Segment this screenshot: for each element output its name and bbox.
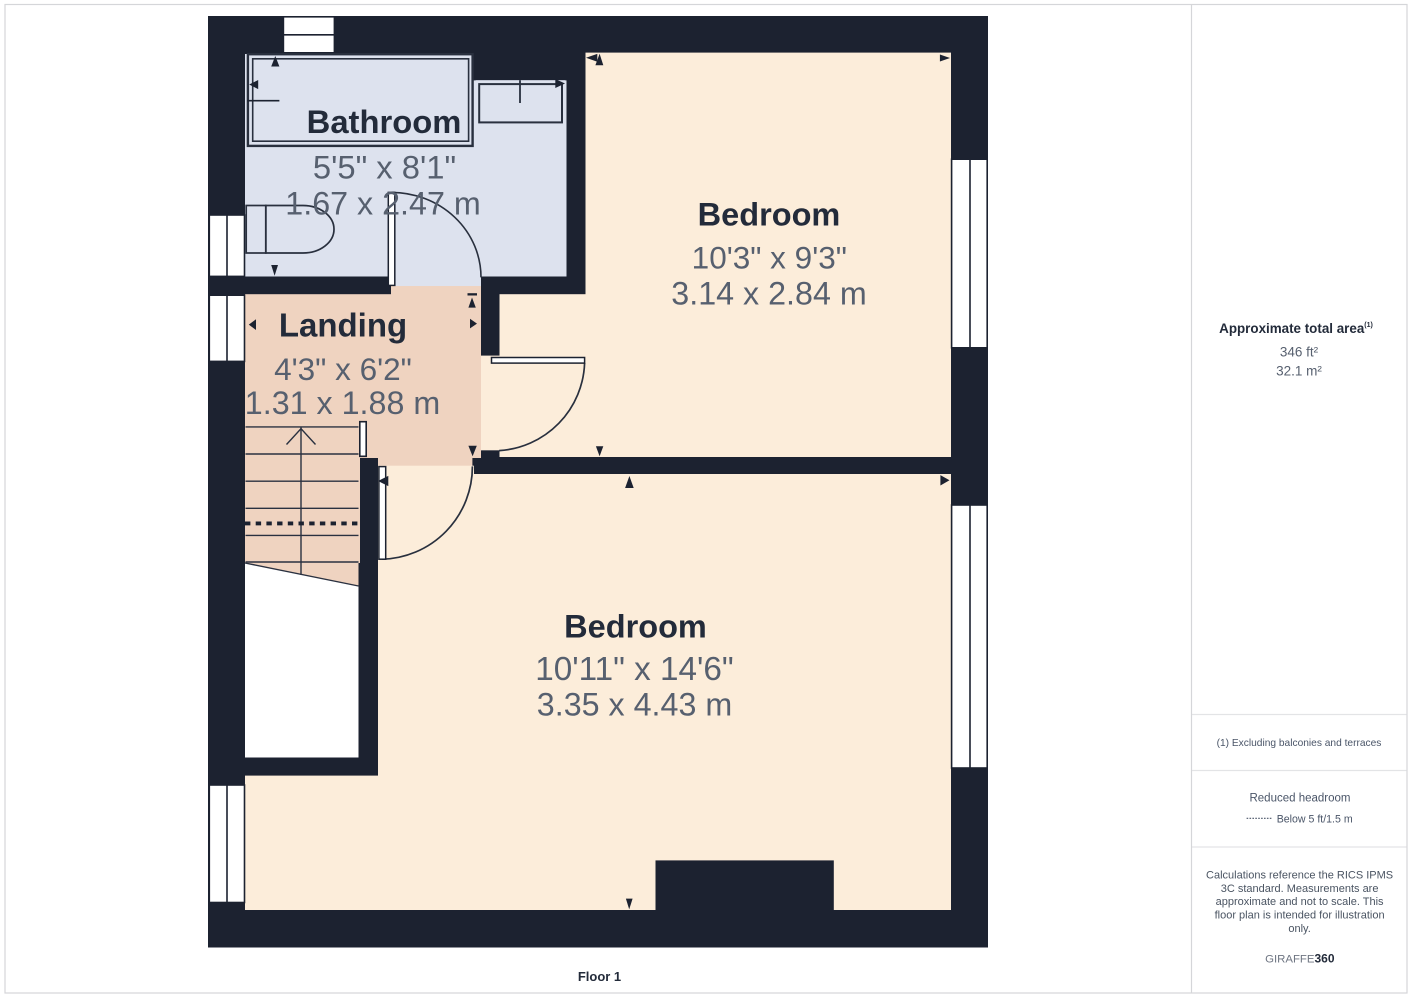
- svg-text:(1) Excluding balconies and te: (1) Excluding balconies and terraces: [1217, 738, 1382, 749]
- svg-text:Bedroom: Bedroom: [698, 197, 841, 233]
- svg-text:10'11" x 14'6": 10'11" x 14'6": [535, 651, 733, 688]
- svg-text:only.: only.: [1288, 923, 1310, 935]
- svg-text:5'5" x 8'1": 5'5" x 8'1": [313, 149, 456, 186]
- svg-text:4'3" x 6'2": 4'3" x 6'2": [274, 351, 412, 387]
- svg-text:Reduced headroom: Reduced headroom: [1249, 792, 1350, 804]
- svg-text:approximate and not to scale.: approximate and not to scale. This: [1216, 896, 1384, 908]
- svg-text:floor plan is intended for ill: floor plan is intended for illustration: [1215, 910, 1385, 922]
- svg-text:Below 5 ft/1.5 m: Below 5 ft/1.5 m: [1277, 813, 1353, 825]
- svg-text:10'3" x 9'3": 10'3" x 9'3": [692, 239, 847, 275]
- svg-text:Landing: Landing: [279, 306, 407, 343]
- svg-text:Floor 1: Floor 1: [578, 969, 621, 984]
- svg-text:Bedroom: Bedroom: [564, 608, 707, 644]
- svg-text:Approximate total area(1): Approximate total area(1): [1219, 321, 1373, 336]
- svg-text:3C standard. Measurements are: 3C standard. Measurements are: [1221, 883, 1379, 895]
- svg-text:Bathroom: Bathroom: [307, 103, 462, 140]
- svg-text:1.31 x 1.88 m: 1.31 x 1.88 m: [245, 385, 440, 421]
- svg-text:GIRAFFE360: GIRAFFE360: [1265, 952, 1335, 966]
- svg-text:346 ft²: 346 ft²: [1280, 345, 1319, 360]
- svg-text:32.1 m²: 32.1 m²: [1276, 364, 1322, 379]
- svg-text:1.67 x 2.47 m: 1.67 x 2.47 m: [285, 185, 480, 221]
- svg-text:Calculations reference the RIC: Calculations reference the RICS IPMS: [1206, 869, 1393, 881]
- svg-text:3.14 x 2.84 m: 3.14 x 2.84 m: [671, 275, 866, 311]
- svg-text:3.35 x 4.43 m: 3.35 x 4.43 m: [537, 687, 732, 723]
